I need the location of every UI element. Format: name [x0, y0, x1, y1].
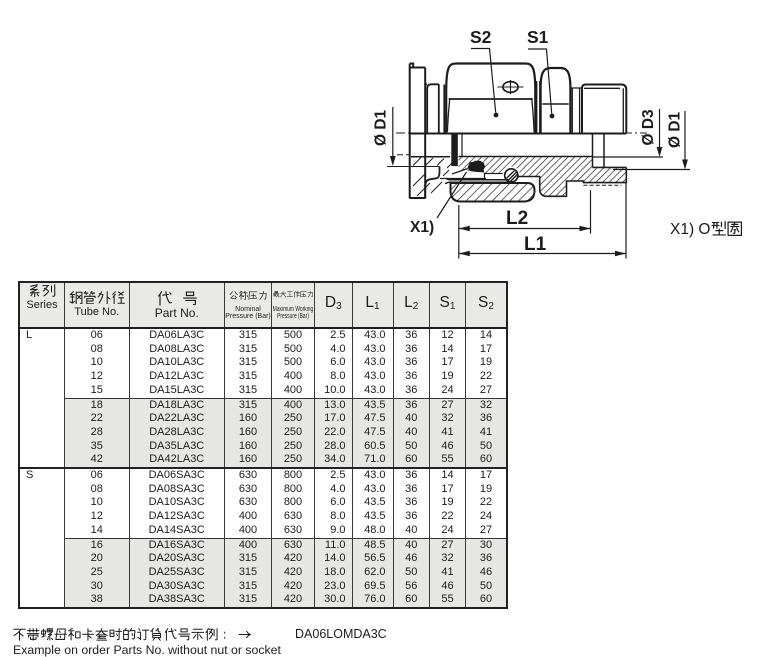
- svg-text:X1) O: X1) O: [670, 221, 710, 238]
- svg-text:L1: L1: [524, 234, 547, 255]
- svg-text:S1: S1: [527, 27, 549, 47]
- svg-text:X1): X1): [410, 219, 434, 236]
- svg-text:S2: S2: [470, 27, 492, 47]
- svg-text:Ø D3: Ø D3: [640, 109, 657, 146]
- svg-text:Ø D1: Ø D1: [667, 111, 684, 148]
- svg-text:Ø D1: Ø D1: [373, 109, 390, 146]
- svg-text:L2: L2: [506, 208, 528, 229]
